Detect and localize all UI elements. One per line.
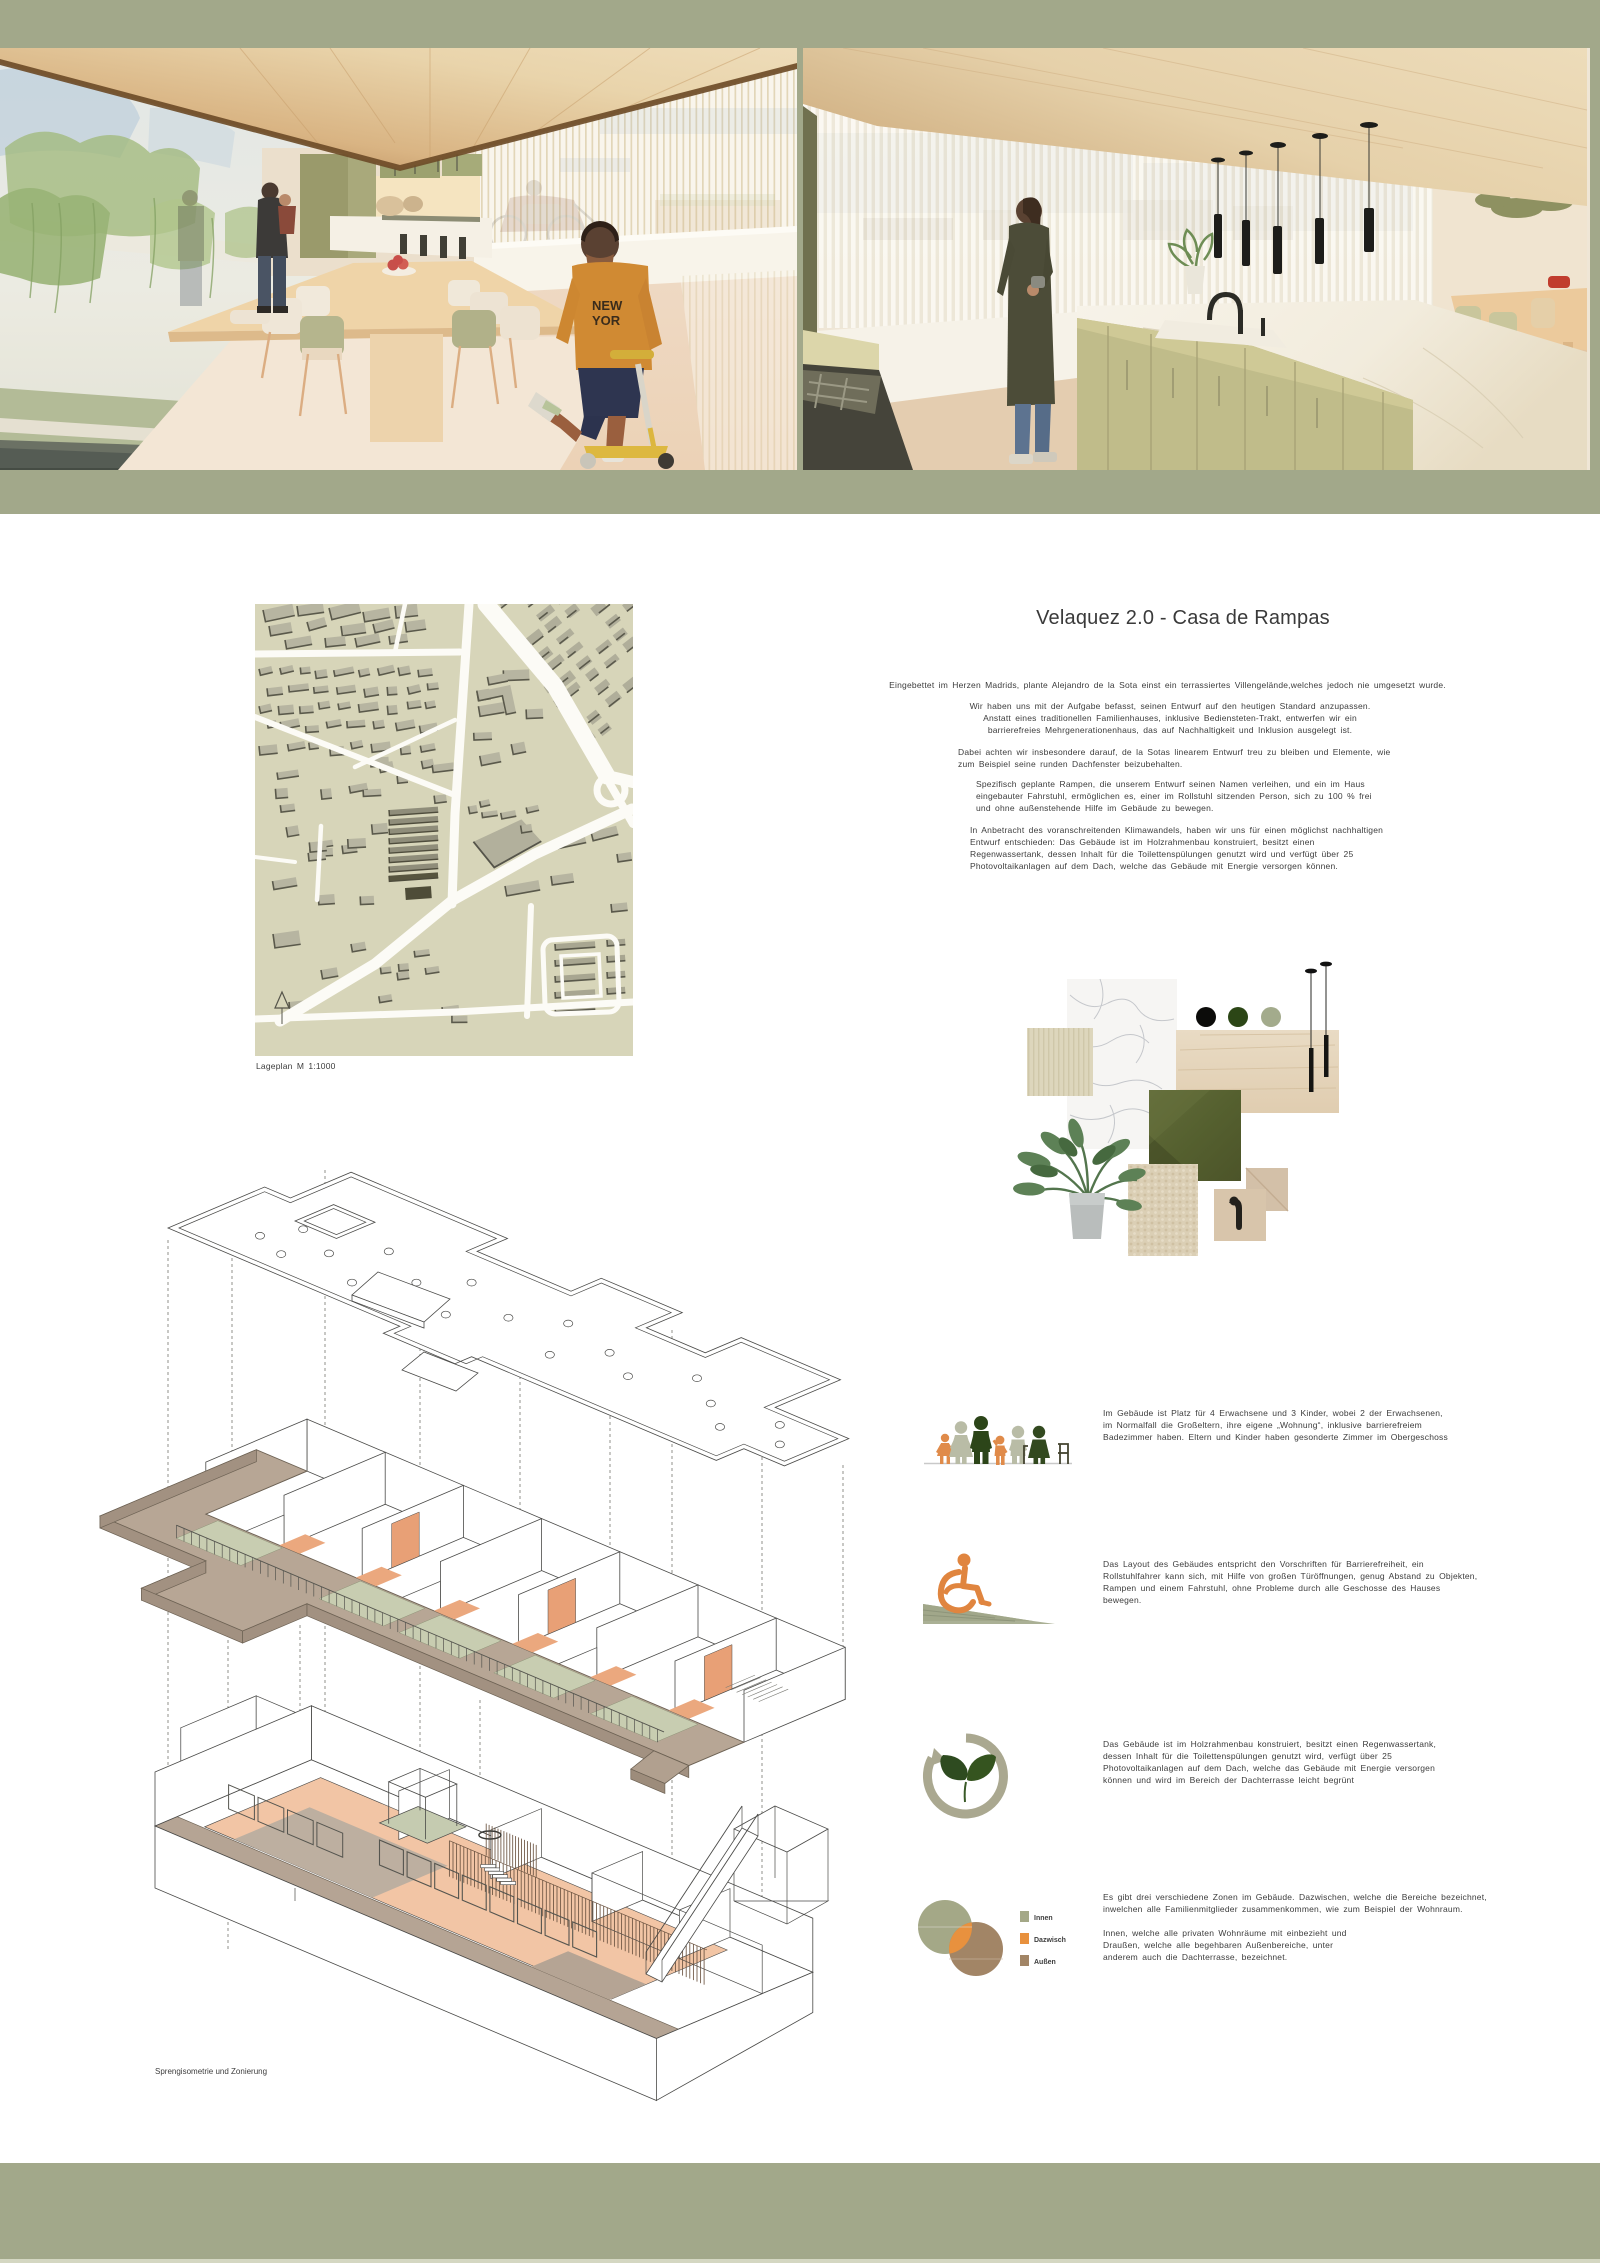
svg-text:NEW: NEW xyxy=(592,298,623,313)
svg-text:Dazwisch: Dazwisch xyxy=(1034,1937,1066,1944)
svg-text:Innen: Innen xyxy=(1034,1915,1053,1922)
svg-text:Außen: Außen xyxy=(1034,1959,1056,1966)
svg-text:YOR: YOR xyxy=(592,313,621,328)
